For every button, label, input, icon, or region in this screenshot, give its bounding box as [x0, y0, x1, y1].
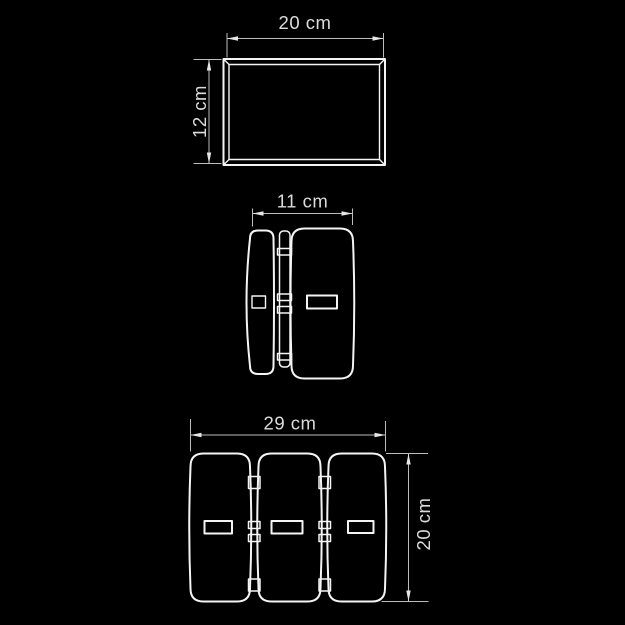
side-depth-label: 11 cm [277, 191, 329, 212]
arrowhead-up [406, 454, 410, 465]
mounting-slot [205, 521, 233, 534]
mounting-slot [252, 296, 266, 308]
front-shade-right-outline [327, 454, 386, 602]
dimension-drawing-canvas: 20 cm 12 cm [0, 0, 625, 625]
arrowhead-left [253, 211, 264, 215]
mounting-slot [307, 296, 337, 309]
mounting-slot [272, 521, 303, 534]
top-width-dimension: 20 cm [227, 12, 384, 58]
frame-outer-rect [224, 59, 386, 165]
mounting-slot [348, 521, 374, 533]
top-height-label: 12 cm [189, 85, 210, 138]
side-shade-back-outline [247, 231, 275, 375]
front-height-label: 20 cm [413, 498, 434, 551]
front-shade-center-outline [257, 454, 322, 602]
top-width-label: 20 cm [279, 12, 332, 33]
frame-corner-bevels [224, 59, 386, 165]
side-view: 11 cm [247, 191, 355, 379]
arrowhead-down [207, 153, 211, 164]
arrowhead-left [191, 433, 202, 437]
extension-lines [227, 33, 384, 58]
front-shade-left-outline [189, 454, 251, 602]
arrowhead-up [207, 60, 211, 71]
arrowhead-right [373, 36, 384, 40]
arrowhead-down [406, 591, 410, 602]
arrowhead-left [227, 36, 238, 40]
top-view: 20 cm 12 cm [189, 12, 385, 165]
frame-outline [224, 59, 386, 165]
arrowhead-right [342, 211, 353, 215]
side-bracket-strip [280, 231, 291, 367]
connector-tab [249, 522, 261, 529]
arrowhead-right [375, 433, 386, 437]
side-depth-dimension: 11 cm [253, 191, 353, 227]
front-height-dimension: 20 cm [382, 454, 435, 602]
front-view: 29 cm 20 cm [189, 413, 434, 602]
connector-tab [319, 522, 331, 529]
lamp-dimension-drawing: 20 cm 12 cm [0, 0, 625, 625]
front-width-dimension: 29 cm [191, 413, 386, 452]
frame-inner-rect [229, 65, 380, 160]
side-shade-front-outline [291, 229, 355, 379]
front-width-label: 29 cm [264, 413, 317, 434]
top-height-dimension: 12 cm [189, 60, 222, 164]
